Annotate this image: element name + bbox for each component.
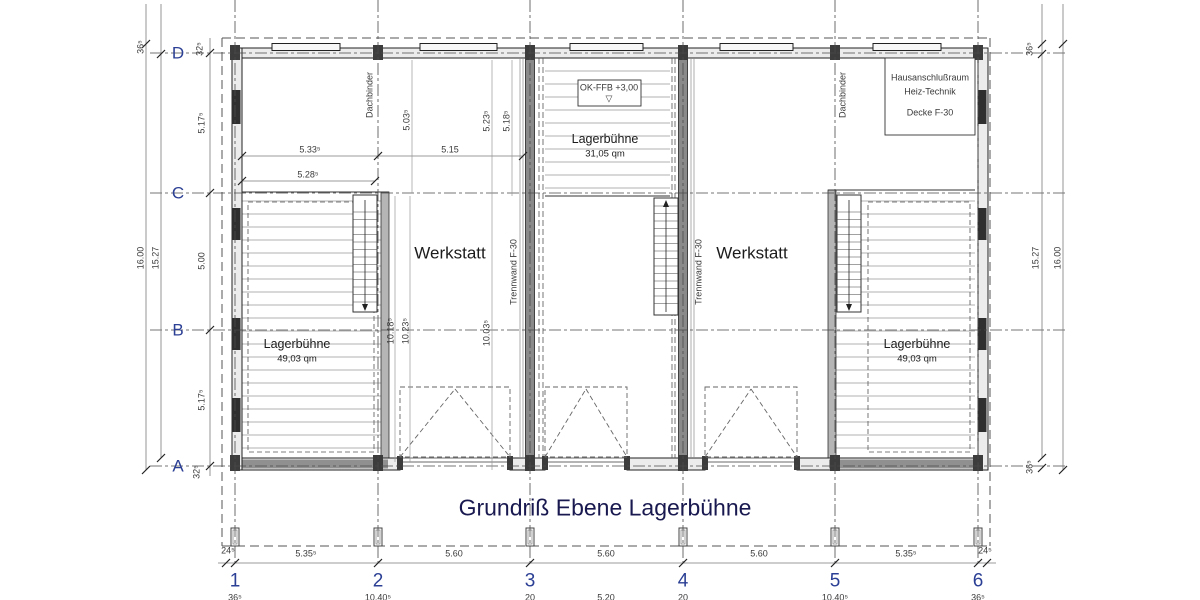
dim-bottom2-3: 20 xyxy=(525,594,535,600)
dim-bottom-bay-3-4: 5.60 xyxy=(597,550,615,559)
dim-bottom2-7: 36⁵ xyxy=(971,594,985,600)
room-lager-left-area: 49,03 qm xyxy=(277,354,317,364)
dim-bottom-bay-2-3: 5.60 xyxy=(445,550,463,559)
trennwand-label-right: Trennwand F-30 xyxy=(695,239,704,305)
dim-bottom-bay-4-5: 5.60 xyxy=(750,550,768,559)
dim-left-b-a: 5.17⁵ xyxy=(198,389,207,410)
dim-left-32-top: 32⁵ xyxy=(196,42,205,56)
dachbinder-label-right: Dachbinder xyxy=(839,72,848,118)
trennwand-label-left: Trennwand F-30 xyxy=(510,239,519,305)
level-marker-text: OK-FFB +3,00 xyxy=(580,84,638,93)
floor-plan: Grundriß Ebene Lagerbühne 1 2 3 4 5 6 D … xyxy=(0,0,1200,600)
dim-right-inner: 15.27 xyxy=(1032,247,1041,270)
dim-left-32-bottom: 32⁵ xyxy=(193,465,202,479)
dim-right-total: 16.00 xyxy=(1054,247,1063,270)
grid-col-3: 3 xyxy=(525,572,536,591)
room-lager-left: Lagerbühne xyxy=(264,338,331,351)
dim-left-inner: 15.27 xyxy=(152,247,161,270)
dim-left-d-c: 5.17⁵ xyxy=(198,112,207,133)
grid-col-4: 4 xyxy=(678,572,689,591)
grid-row-d: D xyxy=(172,45,184,62)
dim-int-h3: 5.28⁵ xyxy=(297,171,318,180)
dim-right-36-bottom: 36⁵ xyxy=(1026,460,1035,474)
dim-left-36: 36⁵ xyxy=(137,40,146,54)
dim-int-h1: 5.33⁵ xyxy=(299,146,320,155)
grid-col-6: 6 xyxy=(973,572,984,591)
dim-int-v1: 5.03⁵ xyxy=(403,109,412,130)
dim-int-v6: 10.03⁵ xyxy=(483,320,492,346)
grid-row-a: A xyxy=(172,458,183,475)
dim-left-total: 16.00 xyxy=(137,247,146,270)
dim-bottom-bay-1-2: 5.35⁵ xyxy=(295,550,316,559)
room-werkstatt-left: Werkstatt xyxy=(414,245,485,262)
room-werkstatt-right: Werkstatt xyxy=(716,245,787,262)
dim-int-h2: 5.15 xyxy=(441,146,459,155)
dim-bottom2-5: 20 xyxy=(678,594,688,600)
dim-int-v5: 10.23⁵ xyxy=(402,318,411,344)
dim-bottom-overhang-left: 24⁵ xyxy=(221,547,235,556)
room-haus-line1: Hausanschlußraum xyxy=(891,74,969,83)
dim-bottom2-1: 36⁵ xyxy=(228,594,242,600)
dim-bottom2-6: 10,40⁵ xyxy=(822,594,848,600)
room-haus-line3: Decke F-30 xyxy=(907,109,954,118)
dim-bottom-overhang-right: 24⁵ xyxy=(978,547,992,556)
dim-int-v2: 5.23⁵ xyxy=(483,110,492,131)
room-lager-right-area: 49,03 qm xyxy=(897,354,937,364)
dim-bottom2-4: 5.20 xyxy=(597,594,615,600)
grid-col-2: 2 xyxy=(373,572,384,591)
drawing-title: Grundriß Ebene Lagerbühne xyxy=(459,497,752,520)
room-lager-right: Lagerbühne xyxy=(884,338,951,351)
grid-row-c: C xyxy=(172,185,184,202)
dim-int-v3: 5.18⁵ xyxy=(503,110,512,131)
dim-bottom-bay-5-6: 5.35⁵ xyxy=(895,550,916,559)
grid-row-b: B xyxy=(172,322,183,339)
dim-bottom2-2: 10,40⁵ xyxy=(365,594,391,600)
room-lager-center: Lagerbühne xyxy=(572,133,639,146)
room-lager-center-area: 31,05 qm xyxy=(585,149,625,159)
grid-col-1: 1 xyxy=(230,572,241,591)
level-marker-icon: ▽ xyxy=(606,95,613,104)
grid-col-5: 5 xyxy=(830,572,841,591)
dim-int-v4: 10.18⁵ xyxy=(387,318,396,344)
dim-right-36-top: 36⁵ xyxy=(1026,42,1035,56)
dachbinder-label-left: Dachbinder xyxy=(366,72,375,118)
room-haus-line2: Heiz-Technik xyxy=(904,88,956,97)
dim-left-c-b: 5.00 xyxy=(198,252,207,270)
